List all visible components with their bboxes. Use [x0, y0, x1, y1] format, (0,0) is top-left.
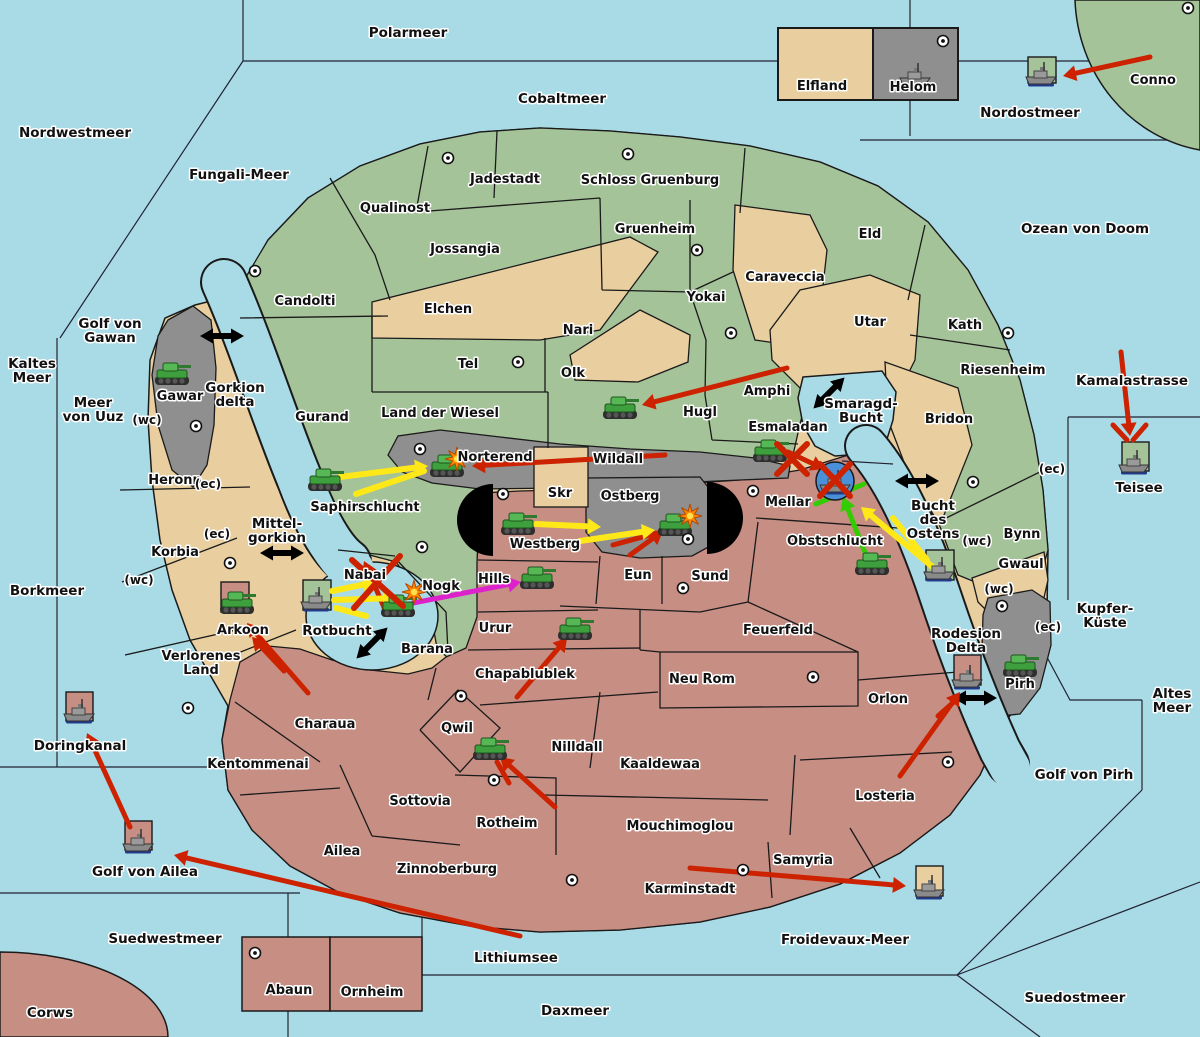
city-marker-icon: [250, 266, 261, 277]
territory-label[interactable]: Jossangia: [429, 242, 500, 257]
territory-label[interactable]: Helom: [890, 80, 937, 95]
sea-label: Golf von Ailea: [92, 864, 198, 880]
connector-label: (ec): [204, 527, 230, 541]
territory-label[interactable]: Kentommenai: [207, 757, 308, 772]
city-marker-icon: [498, 489, 509, 500]
territory-label[interactable]: Kaaldewaa: [620, 757, 700, 772]
sea-label: Kamalastrasse: [1076, 373, 1188, 389]
territory-label[interactable]: Tel: [458, 357, 478, 372]
territory-label[interactable]: Losteria: [855, 789, 915, 804]
sea-label: Nordwestmeer: [19, 125, 131, 141]
sea-label: Ozean von Doom: [1021, 221, 1149, 237]
territory-label[interactable]: Caraveccia: [745, 270, 824, 285]
city-marker-icon: [183, 703, 194, 714]
sea-label: Froidevaux-Meer: [781, 932, 909, 948]
sea-label: Nordostmeer: [980, 105, 1080, 121]
sea-label: Teisee: [1115, 480, 1163, 496]
territory-label[interactable]: Orlon: [868, 692, 908, 707]
sea-label: Kupfer-Küste: [1077, 601, 1134, 631]
territory-label[interactable]: Skr: [548, 486, 573, 501]
city-marker-icon: [623, 149, 634, 160]
territory-label[interactable]: Feuerfeld: [743, 623, 813, 638]
territory-label[interactable]: Land der Wiesel: [381, 406, 499, 421]
territory-label[interactable]: Wildall: [593, 452, 643, 467]
city-marker-icon: [225, 558, 236, 569]
territory-label[interactable]: Mellar: [765, 495, 811, 510]
territory-label[interactable]: Neu Rom: [669, 672, 735, 687]
territory-label[interactable]: Eld: [859, 227, 882, 242]
sea-label: Mittel-gorkion: [248, 516, 306, 546]
connector-label: (wc): [132, 413, 161, 427]
connector-label: (ec): [1039, 462, 1065, 476]
territory-label[interactable]: Schloss Gruenburg: [581, 173, 719, 188]
city-marker-icon: [968, 477, 979, 488]
territory-label[interactable]: Mouchimoglou: [627, 819, 734, 834]
city-marker-icon: [456, 691, 467, 702]
city-marker-icon: [997, 601, 1008, 612]
city-marker-icon: [1183, 3, 1194, 14]
territory-label[interactable]: Bynn: [1004, 527, 1041, 542]
city-marker-icon: [692, 245, 703, 256]
territory-label[interactable]: Ostberg: [601, 489, 660, 504]
territory-label[interactable]: Westberg: [510, 537, 580, 552]
city-marker-icon: [417, 542, 428, 553]
game-map[interactable]: PolarmeerNordwestmeerFungali-MeerCobaltm…: [0, 0, 1200, 1037]
city-marker-icon: [567, 875, 578, 886]
territory-label[interactable]: Arkoon: [217, 623, 269, 638]
sea-label: Doringkanal: [34, 738, 126, 754]
territory-label[interactable]: Utar: [854, 315, 887, 330]
sea-label: KaltesMeer: [8, 356, 56, 386]
territory-label[interactable]: Kath: [948, 318, 982, 333]
territory-label[interactable]: Amphi: [744, 384, 791, 399]
sea-label: Fungali-Meer: [189, 167, 289, 183]
territory-label[interactable]: Bridon: [925, 412, 973, 427]
city-marker-icon: [738, 865, 749, 876]
city-marker-icon: [943, 757, 954, 768]
territory-label[interactable]: Gwaul: [998, 557, 1043, 572]
sea-label: Golf von Pirh: [1035, 767, 1134, 783]
territory-label[interactable]: Elchen: [424, 302, 472, 317]
city-marker-icon: [678, 583, 689, 594]
city-marker-icon: [415, 444, 426, 455]
territory-label[interactable]: Qwil: [441, 721, 473, 736]
territory-label[interactable]: Karminstadt: [645, 882, 736, 897]
sea-label: Cobaltmeer: [518, 91, 606, 107]
territory-label[interactable]: Ailea: [324, 844, 361, 859]
connector-label: (wc): [962, 534, 991, 548]
connector-label: (ec): [195, 477, 221, 491]
territory-label[interactable]: Korbia: [151, 545, 199, 560]
city-marker-icon: [489, 775, 500, 786]
territory-label[interactable]: Ornheim: [341, 985, 404, 1000]
territory-label[interactable]: Yokai: [685, 290, 725, 305]
territory-label[interactable]: Sottovia: [389, 794, 450, 809]
territory-label[interactable]: Hills: [478, 572, 510, 587]
connector-label: (ec): [1035, 620, 1061, 634]
territory-label[interactable]: Gawar: [157, 389, 204, 404]
city-marker-icon: [683, 534, 694, 545]
sea-label: Lithiumsee: [474, 950, 558, 966]
territory-label[interactable]: Nogk: [422, 579, 460, 594]
territory-label[interactable]: Obstschlucht: [787, 534, 883, 549]
territory-label[interactable]: Conno: [1130, 73, 1176, 88]
connector-label: (wc): [124, 573, 153, 587]
territory-label[interactable]: Urur: [479, 621, 512, 636]
territory-label[interactable]: Sund: [691, 569, 728, 584]
territory-label[interactable]: Samyria: [773, 853, 833, 868]
territory-label[interactable]: Pirh: [1005, 677, 1035, 692]
sea-label: Borkmeer: [10, 583, 85, 599]
sea-label: Rotbucht: [302, 623, 372, 639]
sea-label: Daxmeer: [541, 1003, 609, 1019]
territory-label[interactable]: Heronn: [148, 473, 202, 488]
territory-label[interactable]: Barana: [401, 642, 453, 657]
territory-label[interactable]: Elfland: [797, 79, 847, 94]
sea-label: Suedostmeer: [1025, 990, 1126, 1006]
city-marker-icon: [808, 672, 819, 683]
territory-label[interactable]: Abaun: [266, 983, 313, 998]
sea-label: Corws: [27, 1005, 73, 1021]
sea-label: Polarmeer: [369, 25, 448, 41]
city-marker-icon: [513, 357, 524, 368]
territory-label[interactable]: Norterend: [457, 450, 532, 465]
sea-label: Suedwestmeer: [108, 931, 222, 947]
territory-label[interactable]: Qualinost: [360, 201, 430, 216]
territory-label[interactable]: Nabai: [344, 568, 386, 583]
city-marker-icon: [1003, 328, 1014, 339]
city-marker-icon: [748, 486, 759, 497]
territory-label[interactable]: Hugl: [683, 405, 717, 420]
territory-label[interactable]: Nilldall: [551, 740, 602, 755]
city-marker-icon: [726, 328, 737, 339]
territory-label[interactable]: Zinnoberburg: [397, 862, 497, 877]
territory-label[interactable]: Saphirschlucht: [310, 500, 419, 515]
territory-label[interactable]: Eun: [624, 568, 651, 583]
territory-label[interactable]: Gruenheim: [615, 222, 695, 237]
sea-label: Golf vonGawan: [78, 316, 141, 346]
territory-label[interactable]: Nari: [563, 323, 594, 338]
city-marker-icon: [191, 421, 202, 432]
territory-label[interactable]: Rotheim: [476, 816, 537, 831]
territory-label[interactable]: Riesenheim: [960, 363, 1045, 378]
territory-label[interactable]: Gurand: [295, 410, 349, 425]
territory-label[interactable]: Jadestadt: [469, 172, 540, 187]
sea-label: AltesMeer: [1153, 686, 1192, 716]
territory-label[interactable]: Esmaladan: [748, 420, 828, 435]
city-marker-icon: [938, 36, 949, 47]
territory-label[interactable]: Chapablublek: [475, 667, 575, 682]
territory-label[interactable]: Olk: [561, 366, 586, 381]
explosion-icon: [678, 504, 702, 528]
territory-label[interactable]: Charaua: [295, 717, 356, 732]
territory-label[interactable]: Candolti: [275, 294, 336, 309]
connector-label: (wc): [984, 582, 1013, 596]
city-marker-icon: [443, 153, 454, 164]
war-map-stage: PolarmeerNordwestmeerFungali-MeerCobaltm…: [0, 0, 1200, 1037]
city-marker-icon: [250, 948, 261, 959]
